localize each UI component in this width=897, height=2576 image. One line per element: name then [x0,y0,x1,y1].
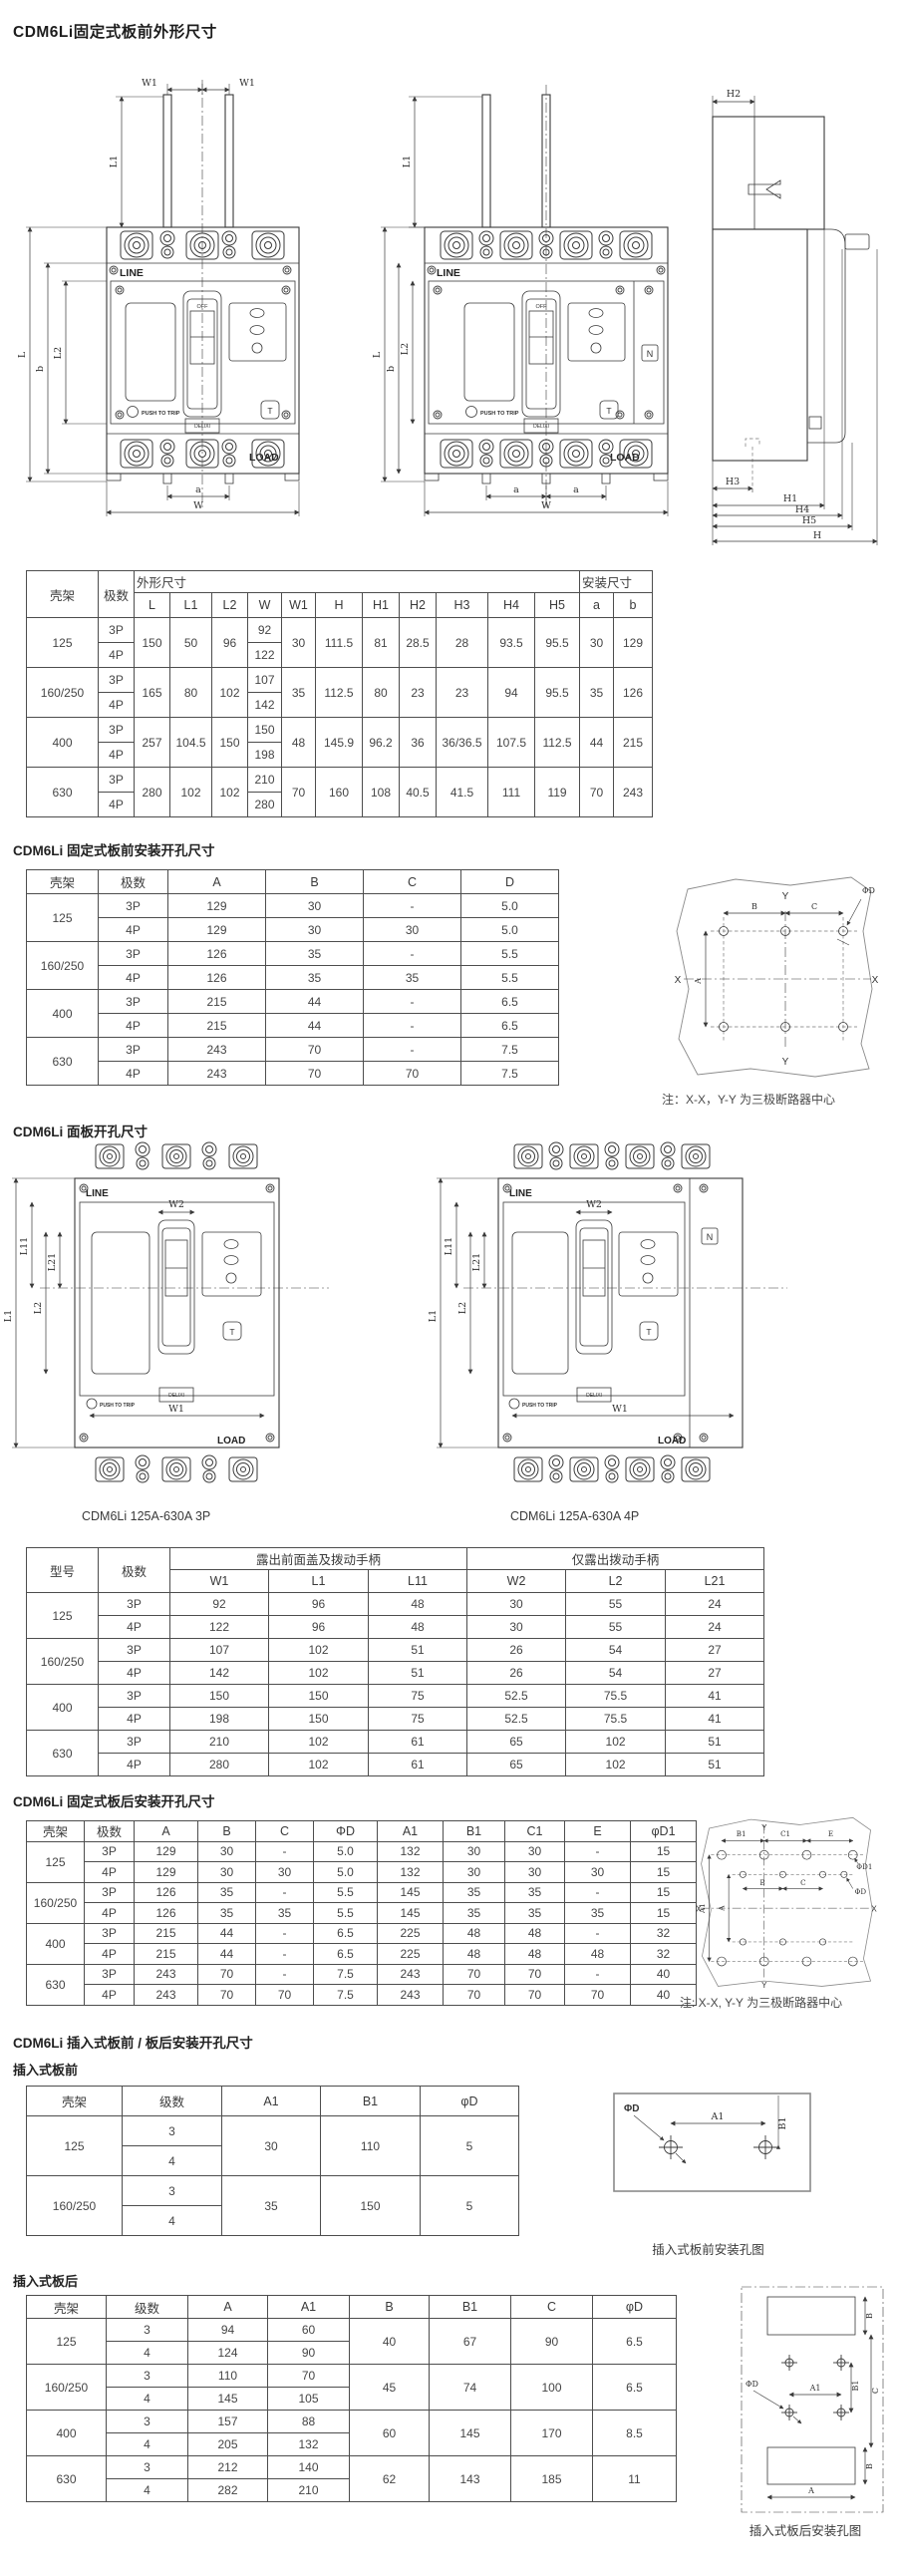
data-cell: 4 [107,2479,188,2502]
data-cell: 48 [505,1944,565,1965]
section-title-plug-in: CDM6Li 插入式板前 / 板后安装开孔尺寸 [13,2032,253,2052]
data-cell: 243 [614,768,653,817]
dim-label-c: C [871,2388,880,2394]
data-cell: 160/250 [27,942,99,990]
dim-label-e: E [828,1829,833,1838]
data-cell: 129 [135,1862,198,1883]
data-cell: 7.5 [314,1985,378,2006]
data-cell: 4P [85,1985,135,2006]
data-cell: 55 [566,1616,666,1639]
data-cell: 48 [505,1923,565,1944]
test-button-label: T [267,406,272,416]
header-cell: L1 [269,1570,369,1593]
dim-label-w1: W1 [142,78,157,89]
dim-label-phid: ΦD [746,2380,758,2389]
header-cell: H4 [488,593,535,618]
data-cell: 125 [27,2116,123,2176]
dim-label-l2: L2 [53,347,64,359]
data-cell: 26 [467,1639,566,1662]
data-cell: 51 [666,1754,764,1776]
data-cell: 65 [467,1731,566,1754]
data-cell: 4 [107,2433,188,2456]
data-cell: 160 [316,768,363,817]
header-cell: 安装尺寸 [580,571,653,593]
data-cell: 44 [266,990,364,1014]
data-cell: 150 [321,2176,421,2236]
data-cell: 4P [99,1014,168,1038]
data-cell: 96 [269,1616,369,1639]
data-cell: 102 [269,1639,369,1662]
off-label: OFF [197,304,209,310]
data-cell: 40.5 [400,768,437,817]
header-cell: 壳架 [27,2296,107,2319]
data-cell: 5 [421,2176,519,2236]
dim-label-a: a [195,484,201,495]
header-cell: W1 [282,593,316,618]
axis-label-x: X [871,1905,877,1914]
header-cell: 极数 [85,1821,135,1842]
data-cell: 243 [168,1038,266,1062]
data-cell: 6.5 [461,990,559,1014]
data-cell: 4 [123,2146,222,2176]
dim-label-c: C [800,1878,806,1887]
header-cell: A1 [222,2087,321,2116]
data-cell: 126 [135,1882,198,1903]
data-cell: 70 [198,1985,256,2006]
data-cell: 142 [170,1662,269,1685]
data-cell: 48 [282,718,316,768]
data-cell: 7.5 [461,1062,559,1086]
dim-label-h3: H3 [726,477,740,487]
data-cell: 90 [268,2342,350,2365]
data-cell: 61 [369,1754,467,1776]
data-cell: 90 [511,2319,593,2365]
data-cell: 35 [444,1903,505,1924]
brand-label: DELIXI [533,424,549,430]
data-cell: 50 [170,618,212,668]
data-cell: 210 [170,1731,269,1754]
data-cell: - [364,1038,461,1062]
header-cell: A1 [268,2296,350,2319]
data-cell: 143 [430,2456,511,2502]
data-cell: 8.5 [593,2411,677,2456]
panel-cutout-drawing: LINE T PUSH TO TRIP DELIXI LOAD W2 W1 L1… [0,1136,897,1503]
data-cell: 30 [222,2116,321,2176]
data-cell: 100 [511,2365,593,2411]
header-cell: 级数 [107,2296,188,2319]
data-cell: 125 [27,1841,85,1882]
data-cell: 125 [27,1593,99,1639]
data-cell: 257 [135,718,170,768]
data-cell: 5.5 [461,942,559,966]
dimension-lines: H2 [713,89,754,117]
data-cell: 70 [565,1985,631,2006]
data-cell: 142 [248,693,282,718]
data-cell: 6.5 [593,2319,677,2365]
header-cell: C [256,1821,314,1842]
header-cell: φD [421,2087,519,2116]
data-cell: 75.5 [566,1708,666,1731]
data-cell: 3 [107,2365,188,2388]
data-cell: 150 [269,1708,369,1731]
data-cell: 225 [378,1944,444,1965]
data-cell: 3P [85,1841,135,1862]
data-cell: 36 [400,718,437,768]
header-cell: L2 [212,593,248,618]
data-cell: 102 [269,1731,369,1754]
data-cell: 4P [85,1862,135,1883]
data-cell: 11 [593,2456,677,2502]
data-cell: 132 [378,1841,444,1862]
data-cell: 4P [99,966,168,990]
data-cell: 165 [135,668,170,718]
header-cell: L2 [566,1570,666,1593]
data-cell: 5.0 [461,918,559,942]
section-title-rear-mount: CDM6Li 固定式板后安装开孔尺寸 [13,1790,215,1810]
dim-label-a: A [718,1905,727,1912]
header-cell: A [135,1821,198,1842]
data-cell: 145 [378,1903,444,1924]
data-cell: 150 [212,718,248,768]
data-cell: 70 [198,1964,256,1985]
header-cell: H [316,593,363,618]
data-cell: 4 [107,2388,188,2411]
data-cell: 198 [248,743,282,768]
data-cell: 160/250 [27,668,99,718]
dim-label-phid: ΦD [855,1887,867,1896]
data-cell: 225 [378,1923,444,1944]
dim-label-l: L [372,351,383,358]
plug-in-rear-table: 壳架级数AA1BB1CφD125394604067906.5412490160/… [26,2295,677,2502]
line-label: LINE [86,1188,109,1199]
data-cell: 23 [437,668,488,718]
data-cell: 60 [350,2411,430,2456]
axis-label-x: X [872,975,879,986]
data-cell: 170 [511,2411,593,2456]
data-cell: 125 [27,894,99,942]
page-title: CDM6Li固定式板前外形尺寸 [13,20,217,42]
data-cell: 44 [580,718,614,768]
dim-label-b: B [865,2463,874,2469]
data-cell: 55 [566,1593,666,1616]
rear-mount-note: 注: X-X, Y-Y 为三极断路器中心 [680,1994,897,2011]
data-cell: - [364,1014,461,1038]
data-cell: 3P [99,618,135,643]
data-cell: 3P [85,1923,135,1944]
data-cell: - [256,1923,314,1944]
data-cell: - [364,894,461,918]
dim-label-a: a [573,484,579,495]
dim-label-phid: ΦD [862,886,875,895]
data-cell: - [565,1964,631,1985]
data-cell: 35 [580,668,614,718]
data-cell: 6.5 [314,1923,378,1944]
data-cell: 129 [168,894,266,918]
dim-label-h1: H1 [783,493,797,504]
data-cell: 3P [99,668,135,693]
data-cell: 102 [212,668,248,718]
panel-3p-view: LINE T PUSH TO TRIP DELIXI LOAD W2 W1 L1… [3,1142,329,1482]
dim-label-l2: L2 [33,1302,44,1314]
data-cell: 54 [566,1662,666,1685]
data-cell: 70 [364,1062,461,1086]
data-cell: 3P [99,1731,170,1754]
data-cell: - [256,1882,314,1903]
data-cell: 35 [266,942,364,966]
push-to-trip-label: PUSH TO TRIP [100,1403,136,1409]
data-cell: 30 [444,1862,505,1883]
dim-label-b: b [35,366,46,372]
data-cell: 111.5 [316,618,363,668]
header-cell: L21 [666,1570,764,1593]
data-cell: 35 [505,1882,565,1903]
data-cell: 102 [212,768,248,817]
dim-label-w: W [541,500,551,511]
header-cell: W1 [170,1570,269,1593]
data-cell: 3P [99,1038,168,1062]
header-cell: 壳架 [27,1821,85,1842]
data-cell: 30 [282,618,316,668]
data-cell: 105 [268,2388,350,2411]
dim-label-l21: L21 [47,1253,58,1271]
data-cell: 6.5 [461,1014,559,1038]
data-cell: - [565,1923,631,1944]
dim-label-l1: L1 [402,156,413,167]
data-cell: 3P [99,718,135,743]
data-cell: 30 [467,1593,566,1616]
header-cell: 露出前面盖及拨动手柄 [170,1548,467,1570]
data-cell: 70 [444,1964,505,1985]
data-cell: 35 [266,966,364,990]
data-cell: 102 [170,768,212,817]
data-cell: 243 [135,1964,198,1985]
dim-label-w: W [193,500,203,511]
dim-label-b: B [865,2313,874,2319]
data-cell: 80 [363,668,400,718]
data-cell: 210 [268,2479,350,2502]
data-cell: 107.5 [488,718,535,768]
data-cell: 160/250 [27,1639,99,1685]
data-cell: 145.9 [316,718,363,768]
front-mount-hole-table: 壳架极数ABCD1253P12930-5.04P12930305.0160/25… [26,869,559,1086]
dim-label-h2: H2 [727,89,741,100]
data-cell: 96 [212,618,248,668]
data-cell: - [256,1841,314,1862]
header-cell: B1 [430,2296,511,2319]
header-cell: L11 [369,1570,467,1593]
data-cell: 119 [535,768,580,817]
data-cell: 54 [566,1639,666,1662]
data-cell: 96 [269,1593,369,1616]
catalog-page: { "sections": { "s1": "CDM6Li固定式板前外形尺寸",… [0,0,897,2576]
header-cell: W [248,593,282,618]
data-cell: 30 [467,1616,566,1639]
data-cell: 30 [580,618,614,668]
data-cell: 52.5 [467,1708,566,1731]
data-cell: 95.5 [535,618,580,668]
data-cell: 30 [198,1862,256,1883]
data-cell: 93.5 [488,618,535,668]
dim-label-h5: H5 [802,515,816,526]
data-cell: 215 [135,1923,198,1944]
dim-label-b1: B1 [737,1829,747,1838]
data-cell: 4P [99,1754,170,1776]
data-cell: 112.5 [535,718,580,768]
data-cell: 5.0 [314,1862,378,1883]
panel-4p-view: LINE N T PUSH TO TRIP DELIXI LOAD W2 W1 … [428,1142,787,1482]
data-cell: 4 [107,2342,188,2365]
data-cell: 40 [350,2319,430,2365]
data-cell: 5.5 [314,1903,378,1924]
header-cell: 型号 [27,1548,99,1593]
data-cell: - [364,990,461,1014]
brand-label: DELIXI [168,1393,184,1399]
data-cell: 70 [268,2365,350,2388]
line-label: LINE [120,267,144,279]
data-cell: 630 [27,1731,99,1776]
data-cell: 126 [168,942,266,966]
data-cell: 160/250 [27,2176,123,2236]
data-cell: - [565,1882,631,1903]
data-cell: 52.5 [467,1685,566,1708]
data-cell: 243 [378,1985,444,2006]
dim-label-w2: W2 [586,1199,602,1210]
data-cell: 44 [266,1014,364,1038]
data-cell: 4P [99,918,168,942]
off-label: OFF [536,304,548,310]
data-cell: 6.5 [593,2365,677,2411]
outline-dimension-drawing: W1 W1 L1 LINE OFF PUSH TO TRIP DELIXI T … [0,50,897,563]
data-cell: 280 [248,793,282,817]
data-cell: 145 [378,1882,444,1903]
data-cell: 102 [269,1662,369,1685]
data-cell: - [256,1964,314,1985]
data-cell: 92 [248,618,282,643]
data-cell: 4P [85,1944,135,1965]
data-cell: 4P [99,1616,170,1639]
dim-label-b1: B1 [851,2381,860,2392]
push-to-trip-label: PUSH TO TRIP [522,1403,558,1409]
data-cell: 108 [363,768,400,817]
data-cell: 132 [378,1862,444,1883]
data-cell: 198 [170,1708,269,1731]
data-cell: 51 [369,1639,467,1662]
data-cell: 3 [107,2411,188,2433]
data-cell: 140 [268,2456,350,2479]
load-label: LOAD [217,1436,245,1447]
data-cell: 27 [666,1639,764,1662]
header-cell: L1 [170,593,212,618]
dim-label-a1: A1 [711,2111,725,2122]
dim-label-l1: L1 [428,1310,439,1322]
data-cell: 630 [27,768,99,817]
dim-label-c: C [811,902,817,911]
dim-label-l: L [17,351,28,358]
axis-label-y: Y [782,891,789,902]
data-cell: 5.0 [461,894,559,918]
line-label: LINE [509,1188,532,1199]
data-cell: 104.5 [170,718,212,768]
data-cell: 70 [444,1985,505,2006]
data-cell: 61 [369,1731,467,1754]
data-cell: 35 [505,1903,565,1924]
dim-label-a: a [513,484,519,495]
data-cell: 107 [170,1639,269,1662]
header-cell: W2 [467,1570,566,1593]
data-cell: 3 [107,2456,188,2479]
dim-label-l11: L11 [19,1237,30,1255]
data-cell: 102 [269,1754,369,1776]
data-cell: 70 [256,1985,314,2006]
data-cell: 7.5 [314,1964,378,1985]
data-cell: 145 [430,2411,511,2456]
data-cell: 280 [170,1754,269,1776]
header-cell: 仅露出拨动手柄 [467,1548,764,1570]
data-cell: 215 [168,1014,266,1038]
data-cell: 243 [135,1985,198,2006]
data-cell: 400 [27,1685,99,1731]
data-cell: 102 [566,1754,666,1776]
plug-in-front-hole-diagram: ΦD A1 B1 [596,2084,820,2201]
data-cell: 28 [437,618,488,668]
data-cell: 400 [27,990,99,1038]
subsection-plug-in-rear: 插入式板后 [13,2271,78,2290]
data-cell: 215 [614,718,653,768]
dim-label-b: B [751,902,757,911]
front-mount-note: 注：X-X，Y-Y 为三极断路器中心 [662,1091,897,1108]
plug-in-front-table: 壳架级数A1B1φD12533011054160/25033515054 [26,2086,519,2236]
data-cell: 5.0 [314,1841,378,1862]
data-cell: 88 [268,2411,350,2433]
panel-3p-caption: CDM6Li 125A-630A 3P [82,1509,210,1523]
header-cell: A [188,2296,268,2319]
header-cell: C [511,2296,593,2319]
data-cell: 75.5 [566,1685,666,1708]
dim-label-phid1: ΦD1 [856,1862,872,1871]
breaker-4p-front-view: L1 LINE N OFF PUSH TO TRIP DELIXI T LOAD [372,85,668,516]
panel-4p-caption: CDM6Li 125A-630A 4P [510,1509,639,1523]
dim-label-w2: W2 [168,1199,184,1210]
data-cell: 400 [27,718,99,768]
data-cell: 44 [198,1923,256,1944]
data-cell: 126 [135,1903,198,1924]
data-cell: 630 [27,1038,99,1086]
data-cell: 150 [269,1685,369,1708]
data-cell: 75 [369,1685,467,1708]
data-cell: 24 [666,1616,764,1639]
data-cell: 3P [99,894,168,918]
subsection-plug-in-front: 插入式板前 [13,2060,78,2079]
data-cell: 24 [666,1593,764,1616]
header-cell: φD [593,2296,677,2319]
data-cell: 70 [505,1985,565,2006]
breaker-side-view: H2 H3 H1 H4 H5 H [713,89,877,545]
load-label: LOAD [658,1436,686,1447]
dim-label-a: A [807,2486,814,2495]
data-cell: 30 [565,1862,631,1883]
data-cell: 125 [27,618,99,668]
data-cell: 215 [135,1944,198,1965]
data-cell: 45 [350,2365,430,2411]
data-cell: 3P [99,1639,170,1662]
data-cell: 35 [282,668,316,718]
data-cell: 4P [99,1708,170,1731]
data-cell: 400 [27,2411,107,2456]
data-cell: 92 [170,1593,269,1616]
data-cell: 125 [27,2319,107,2365]
data-cell: 96.2 [363,718,400,768]
data-cell: 30 [266,918,364,942]
